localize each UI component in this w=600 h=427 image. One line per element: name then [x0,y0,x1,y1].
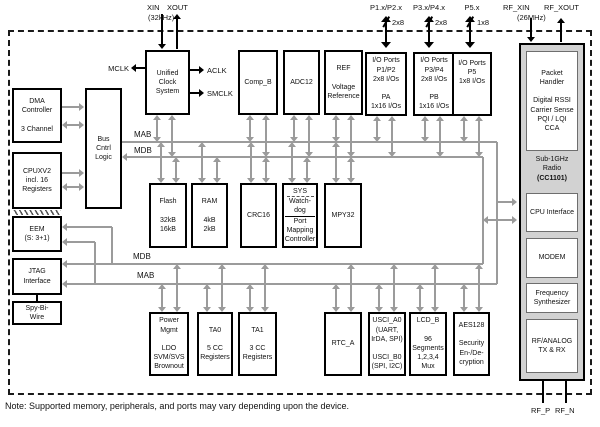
block-adc12: ADC12 [283,50,320,115]
signal-label-smclk: SMCLK [207,89,233,98]
arrow-head [290,115,298,120]
block-ram: RAM 4kB 2kB [191,183,228,248]
pin-label-rf-freq: (26MHz) [517,13,546,22]
arrow-head [305,115,313,120]
bus-line [542,381,544,403]
bus-line [264,266,266,310]
block-sys-watchdog-portmapping: SYS Watch- dog Port Mapping Controller [282,183,318,248]
arrow-head [332,115,340,120]
arrow-head [483,216,488,224]
block-ta0: TA0 5 CC Registers [197,312,233,376]
block-comp-b: Comp_B [238,50,278,115]
radio-part-number: (CC1101) [519,174,585,183]
block-cpuxv2: CPUXV2 incl. 16 Registers [12,152,62,209]
bus-line [64,263,483,265]
bus-line [176,266,178,310]
arrow-head [388,116,396,121]
arrow-head [79,169,84,177]
block-spy-bi-wire: Spy-Bi- Wire [12,301,62,325]
arrow-head [262,115,270,120]
bus-width-label-p3p4: 2x8 [435,18,447,27]
arrow-head [199,89,204,97]
bus-line [350,266,352,310]
sys-label: SYS [293,187,307,196]
footnote: Note: Supported memory, peripherals, and… [5,401,349,411]
block-io-ports-p1p2: I/O Ports P1/P2 2x8 I/Os PA 1x16 I/Os [365,52,407,116]
block-frequency-synthesizer: Frequency Synthesizer [526,283,578,313]
radio-title: Sub-1GHz Radio(CC1101) [519,155,585,183]
bus-line [496,142,498,284]
arrow-head [199,66,204,74]
pin-label-rf-xout: RF_XOUT [544,3,579,12]
pin-label-rf-xin: RF_XIN [503,3,530,12]
arrow-head [527,37,535,42]
bus-line [94,242,96,284]
arrow-head [122,153,127,161]
port-mapping-label: Port Mapping Controller [285,217,315,245]
block-rf-analog-tx-rx: RF/ANALOG TX & RX [526,319,578,373]
bus-line [439,118,441,155]
block-flash: Flash 32kB 16kB [149,183,187,248]
block-eem: EEM (S: 3+1) [12,216,62,252]
arrow-head [512,198,517,206]
block-cpu-interface: CPU Interface [526,193,578,232]
arrow-head [62,260,67,268]
block-diagram: XIN XOUT (32kHz) MCLK ACLK SMCLK P1.x/P2… [0,0,600,427]
arrow-head [79,121,84,129]
bus-line [485,219,515,221]
block-power-mgmt: Power Mgmt LDO SVM/SVS Brownout [149,312,189,376]
arrow-head [436,116,444,121]
arrow-head [373,116,381,121]
arrow-head [421,116,429,121]
arrow-head [512,216,517,224]
arrow-head [79,103,84,111]
bus-line [478,118,480,155]
arrow-head [381,42,391,48]
signal-label-mclk: MCLK [102,64,129,73]
arrow-head [62,183,67,191]
arrow-head [62,121,67,129]
block-mpy32: MPY32 [324,183,362,248]
signal-label-aclk: ACLK [207,66,227,75]
arrow-head [62,280,67,288]
bus-line [111,227,113,264]
pin-label-p1p2: P1.x/P2.x [362,3,410,12]
bus-line [201,144,203,181]
bus-line [64,226,112,228]
pin-label-p5: P5.x [452,3,492,12]
block-dma-controller: DMA Controller 3 Channel [12,88,62,143]
arrow-head [465,42,475,48]
hatch-marks [13,210,61,215]
block-crc16: CRC16 [240,183,277,248]
block-modem: MODEM [526,238,578,278]
bus-label-mab-top: MAB [134,130,151,139]
bus-line [221,266,223,310]
bus-line [350,117,352,155]
block-ref-voltage-reference: REF Voltage Reference [324,50,363,115]
pin-label-xout: XOUT [167,3,188,12]
bus-line [291,144,293,181]
arrow-head [168,115,176,120]
arrow-head [246,115,254,120]
block-io-ports-p5: I/O Ports P5 1x8 I/Os [452,52,492,116]
bus-width-label-p1p2: 2x8 [392,18,404,27]
block-unified-clock-system: Unified Clock System [145,50,190,115]
arrow-head [153,115,161,120]
bus-label-mab-bottom: MAB [137,271,154,280]
pin-label-rf-n: RF_N [555,406,575,415]
bus-line [265,117,267,155]
block-jtag-interface: JTAG Interface [12,258,62,295]
block-usci: USCI_A0 (UART, IrDA, SPI) USCI_B0 (SPI, … [368,312,406,376]
arrow-head [62,223,67,231]
bus-line [434,266,436,310]
pin-label-xtal-freq: (32kHz) [148,13,174,22]
arrow-head [475,116,483,121]
bus-line [176,16,178,49]
bus-line [478,266,480,310]
watchdog-label: Watch- dog [289,197,311,215]
block-rtc-a: RTC_A [324,312,362,376]
arrow-head [79,183,84,191]
arrow-head [131,64,136,72]
bus-width-label-p5: 1x8 [477,18,489,27]
bus-line [560,20,562,42]
arrow-head [158,44,166,49]
arrow-head [347,115,355,120]
bus-line [393,266,395,310]
bus-line [122,141,497,143]
block-ta1: TA1 3 CC Registers [238,312,277,376]
bus-line [250,144,252,181]
bus-line [335,144,337,181]
bus-line [64,241,95,243]
pin-label-p3p4: P3.x/P4.x [405,3,453,12]
block-io-ports-p3p4: I/O Ports P3/P4 2x8 I/Os PB 1x16 I/Os [413,52,455,116]
block-lcd-b: LCD_B 96 Segments 1,2,3,4 Mux [409,312,447,376]
block-bus-cntrl-logic: Bus Cntrl Logic [85,88,122,209]
pin-label-rf-p: RF_P [531,406,550,415]
bus-label-mdb-top: MDB [134,146,152,155]
arrow-head [460,116,468,121]
bus-line [171,117,173,155]
arrow-head [557,18,565,23]
bus-line [160,144,162,181]
bus-label-mdb-bottom: MDB [133,252,151,261]
bus-line [482,157,484,264]
block-aes128: AES128 Security En-/De- cryption [453,312,490,376]
bus-line [124,156,483,158]
arrow-head [62,238,67,246]
block-packet-handler: Packet Handler Digital RSSI Carrier Sens… [526,51,578,151]
bus-line [391,118,393,155]
bus-line [64,283,497,285]
bus-line [565,381,567,403]
arrow-head [424,42,434,48]
pin-label-xin: XIN [147,3,160,12]
bus-line [308,117,310,155]
